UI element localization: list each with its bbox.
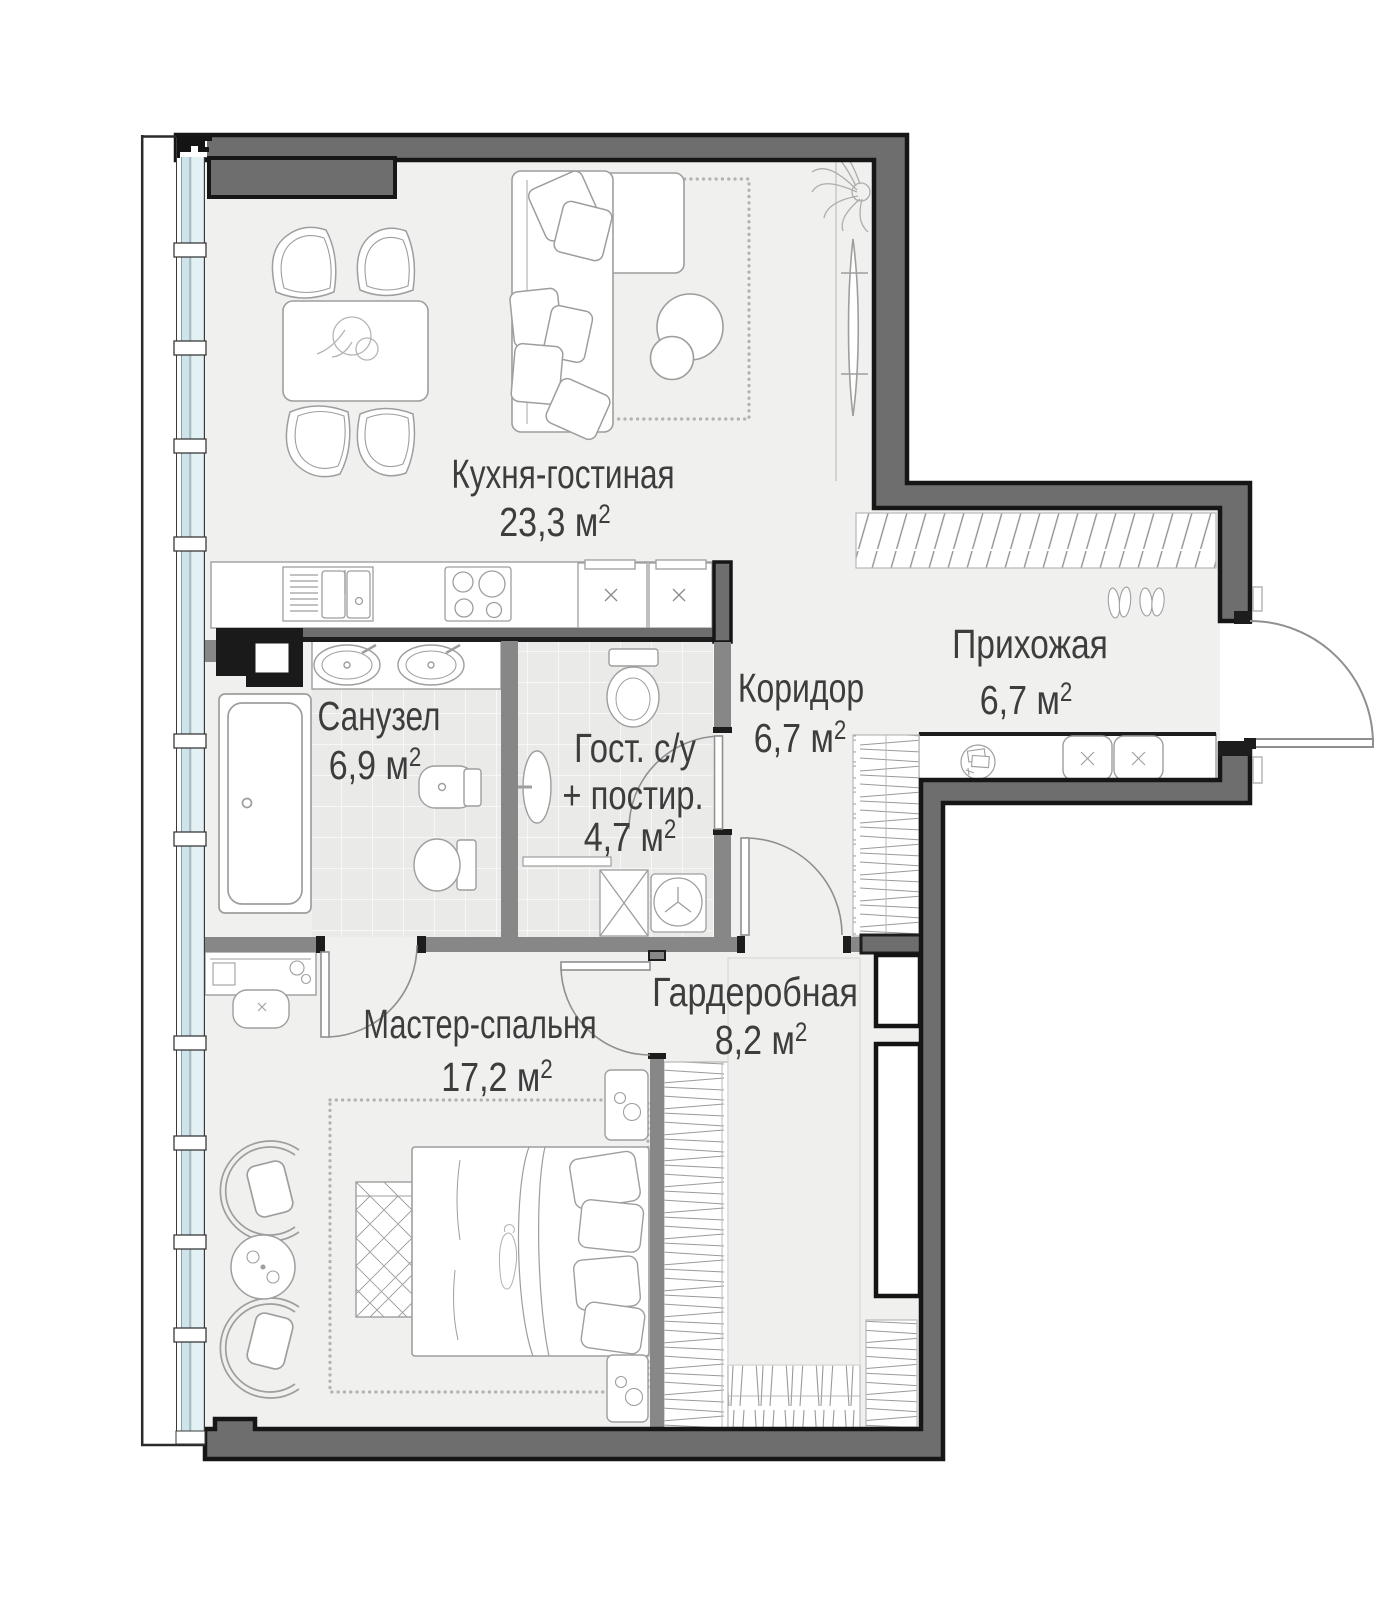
svg-text:Прихожая: Прихожая bbox=[952, 621, 1108, 667]
svg-text:6,7 м2: 6,7 м2 bbox=[754, 715, 847, 761]
svg-text:23,3 м2: 23,3 м2 bbox=[499, 499, 611, 545]
svg-text:+ постир.: + постир. bbox=[562, 771, 703, 817]
svg-text:6,9 м2: 6,9 м2 bbox=[329, 742, 422, 788]
svg-text:Гардеробная: Гардеробная bbox=[652, 969, 858, 1015]
svg-text:Санузел: Санузел bbox=[318, 693, 441, 739]
svg-text:6,7 м2: 6,7 м2 bbox=[980, 677, 1073, 723]
svg-text:Кухня-гостиная: Кухня-гостиная bbox=[451, 451, 674, 497]
svg-text:Мастер-спальня: Мастер-спальня bbox=[363, 1001, 596, 1047]
svg-text:8,2 м2: 8,2 м2 bbox=[715, 1017, 808, 1063]
svg-text:Коридор: Коридор bbox=[738, 665, 864, 711]
svg-text:17,2 м2: 17,2 м2 bbox=[441, 1054, 553, 1100]
svg-text:4,7 м2: 4,7 м2 bbox=[584, 814, 677, 860]
svg-text:Гост. с/у: Гост. с/у bbox=[574, 724, 696, 770]
